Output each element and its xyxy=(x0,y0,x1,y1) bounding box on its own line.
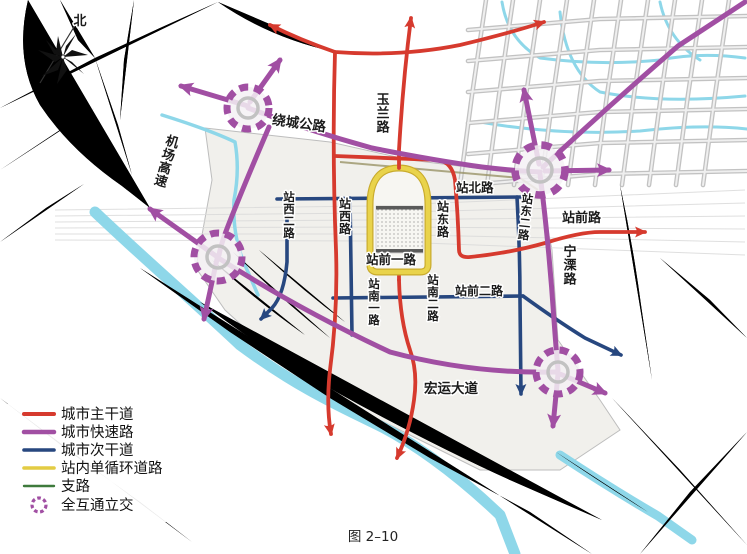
label-zhanqian-lu: 站前路 xyxy=(562,210,602,226)
compass-north-label: 北 xyxy=(73,14,86,29)
legend-label-expressway: 城市快速路 xyxy=(61,424,134,441)
station-platform-north xyxy=(376,206,423,210)
label-raocheng-gonglu: 绕城公路 xyxy=(271,111,327,135)
label-zhannan-yi-lu: 站南一路 xyxy=(368,277,380,327)
label-yulan-lu: 玉兰路 xyxy=(376,93,390,135)
label-zhandong-lu: 站东路 xyxy=(437,199,450,239)
interchange-southwest xyxy=(194,233,242,281)
station-building xyxy=(376,206,423,253)
legend-label-interchange: 全互通立交 xyxy=(61,496,134,514)
legend-label-station-loop: 站内单循环道路 xyxy=(61,460,163,477)
label-zhannan-er-lu: 站南二路 xyxy=(427,273,439,323)
label-hongyun-dadao: 宏运大道 xyxy=(424,380,478,397)
legend: 城市主干道 城市快速路 城市次干道 站内单循环道路 支路 全互通立交 xyxy=(6,404,178,522)
legend-label-branch: 支路 xyxy=(61,478,90,495)
planning-map-figure: 北 绕城公路 玉兰路 机场高速 站北路 站西二路 站西路 站东路 站东二路 站前… xyxy=(0,0,747,554)
legend-label-secondary: 城市次干道 xyxy=(61,442,134,459)
label-zhanqian-yi-lu: 站前一路 xyxy=(366,252,417,267)
interchange-southeast xyxy=(536,350,580,394)
label-zhanxi-er-lu: 站西二路 xyxy=(283,190,295,240)
label-zhanxi-lu: 站西路 xyxy=(339,196,352,236)
map-canvas: 北 绕城公路 玉兰路 机场高速 站北路 站西二路 站西路 站东路 站东二路 站前… xyxy=(0,0,747,554)
interchange-raocheng xyxy=(227,87,269,129)
label-jichang-gaosu: 机场高速 xyxy=(152,133,180,191)
label-ningli-lu: 宁溧路 xyxy=(563,244,577,287)
road-yulan-lu xyxy=(399,18,411,168)
label-zhanbei-lu: 站北路 xyxy=(456,180,494,195)
label-zhanqian-er-lu: 站前二路 xyxy=(455,283,504,298)
interchange-northeast xyxy=(515,145,565,195)
legend-label-main-road: 城市主干道 xyxy=(61,406,134,423)
figure-caption: 图 2–10 xyxy=(348,529,398,545)
compass-center xyxy=(61,55,65,59)
